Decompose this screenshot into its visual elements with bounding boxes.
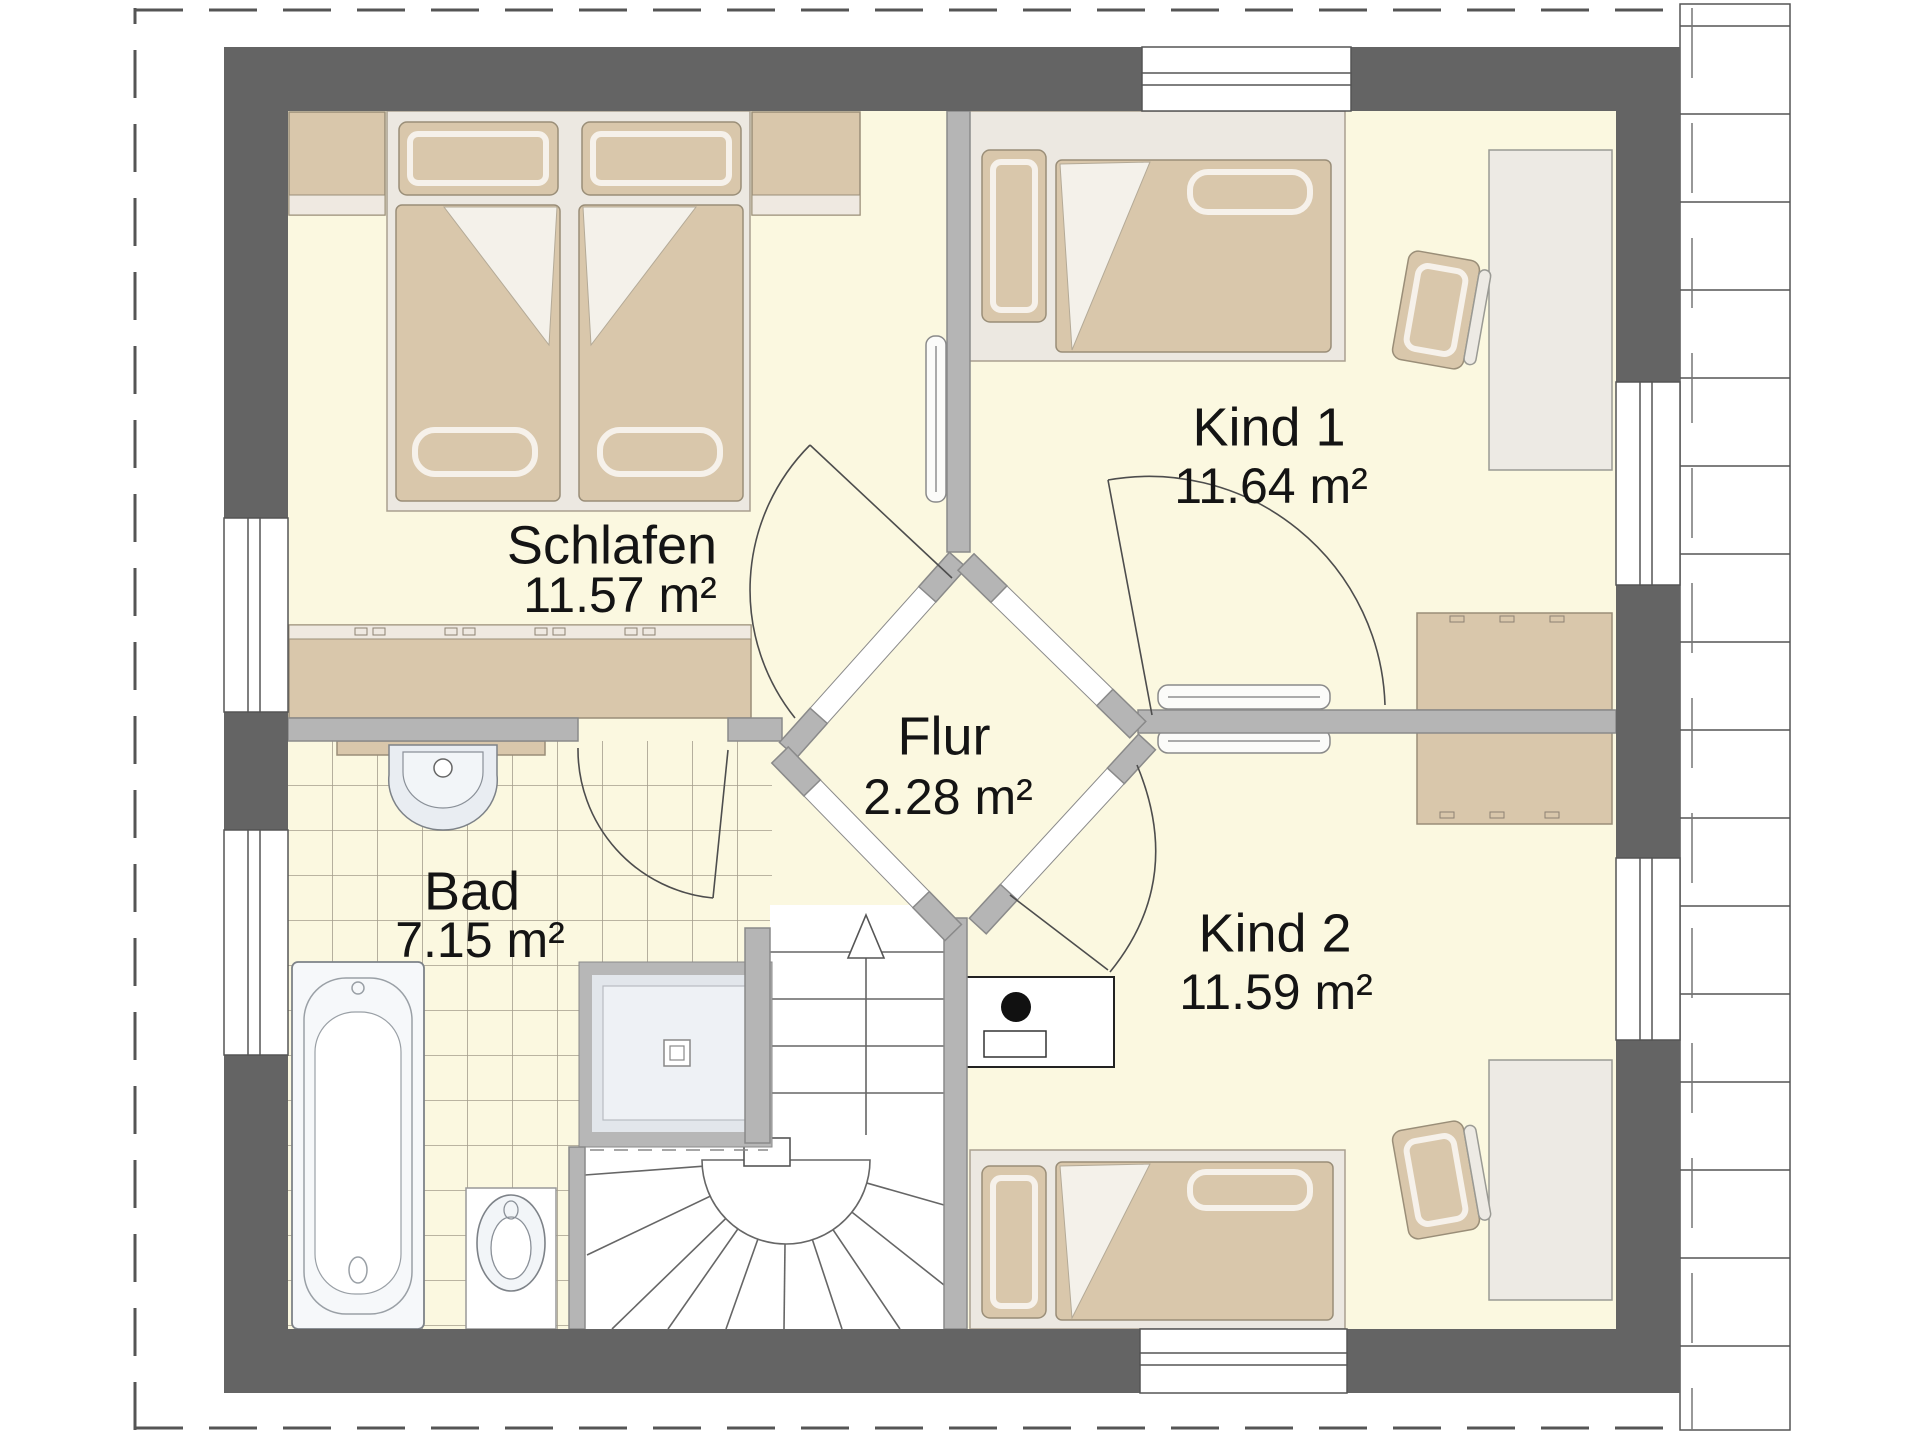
- wall-kind1-kind2: [1138, 710, 1616, 733]
- label-kind2-area: 11.59 m²: [1179, 964, 1373, 1020]
- label-kind1-name: Kind 1: [1192, 397, 1345, 457]
- label-bad-area: 7.15 m²: [395, 912, 565, 968]
- shelf: [1417, 613, 1612, 710]
- wall-schlafen-bad: [728, 718, 782, 741]
- label-kind1-area: 11.64 m²: [1174, 458, 1368, 514]
- wall-stair-kind2: [944, 918, 967, 1329]
- window-kind2-right: [1616, 858, 1680, 1040]
- window-kind1-right: [1616, 382, 1680, 585]
- double-bed: [387, 111, 750, 511]
- window-schlafen: [224, 518, 288, 712]
- label-schlafen-area: 11.57 m²: [523, 567, 717, 623]
- window-kind2-bottom: [1140, 1329, 1347, 1393]
- single-bed: [968, 111, 1345, 361]
- wall-schlafen-kind1: [947, 111, 970, 552]
- bathtub: [292, 962, 424, 1329]
- wardrobe-left: [289, 112, 385, 215]
- shower-drain-icon: [664, 1040, 690, 1066]
- floor-plan-drawing: Schlafen 11.57 m² Kind 1 11.64 m² Flur 2…: [0, 0, 1920, 1440]
- desk-chair: [1391, 1118, 1493, 1241]
- wall-divider: [569, 1147, 585, 1329]
- dresser: [1417, 729, 1612, 824]
- desk: [1489, 150, 1612, 470]
- desk-chair: [1391, 250, 1493, 373]
- chimney-flue-icon: [1001, 992, 1031, 1022]
- window-kind1-top: [1142, 47, 1351, 111]
- desk: [1489, 1060, 1612, 1300]
- radiator: [1158, 685, 1330, 709]
- toilet: [466, 1188, 556, 1329]
- label-flur-name: Flur: [898, 706, 991, 766]
- faucet-icon: [434, 759, 452, 777]
- chimney: [966, 977, 1114, 1067]
- chimney-cleanout: [984, 1031, 1046, 1057]
- radiator: [926, 336, 946, 502]
- label-flur-area: 2.28 m²: [863, 769, 1033, 825]
- wall-bad-stair: [745, 928, 770, 1143]
- shower: [579, 962, 772, 1147]
- wardrobe-right: [752, 112, 860, 215]
- sideboard: [289, 625, 751, 718]
- window-bad: [224, 830, 288, 1055]
- roof-strip: [1680, 4, 1790, 1430]
- floor-plan-page: Schlafen 11.57 m² Kind 1 11.64 m² Flur 2…: [0, 0, 1920, 1440]
- single-bed: [970, 1150, 1345, 1329]
- label-kind2-name: Kind 2: [1198, 903, 1351, 963]
- wall-schlafen-bad: [288, 718, 578, 741]
